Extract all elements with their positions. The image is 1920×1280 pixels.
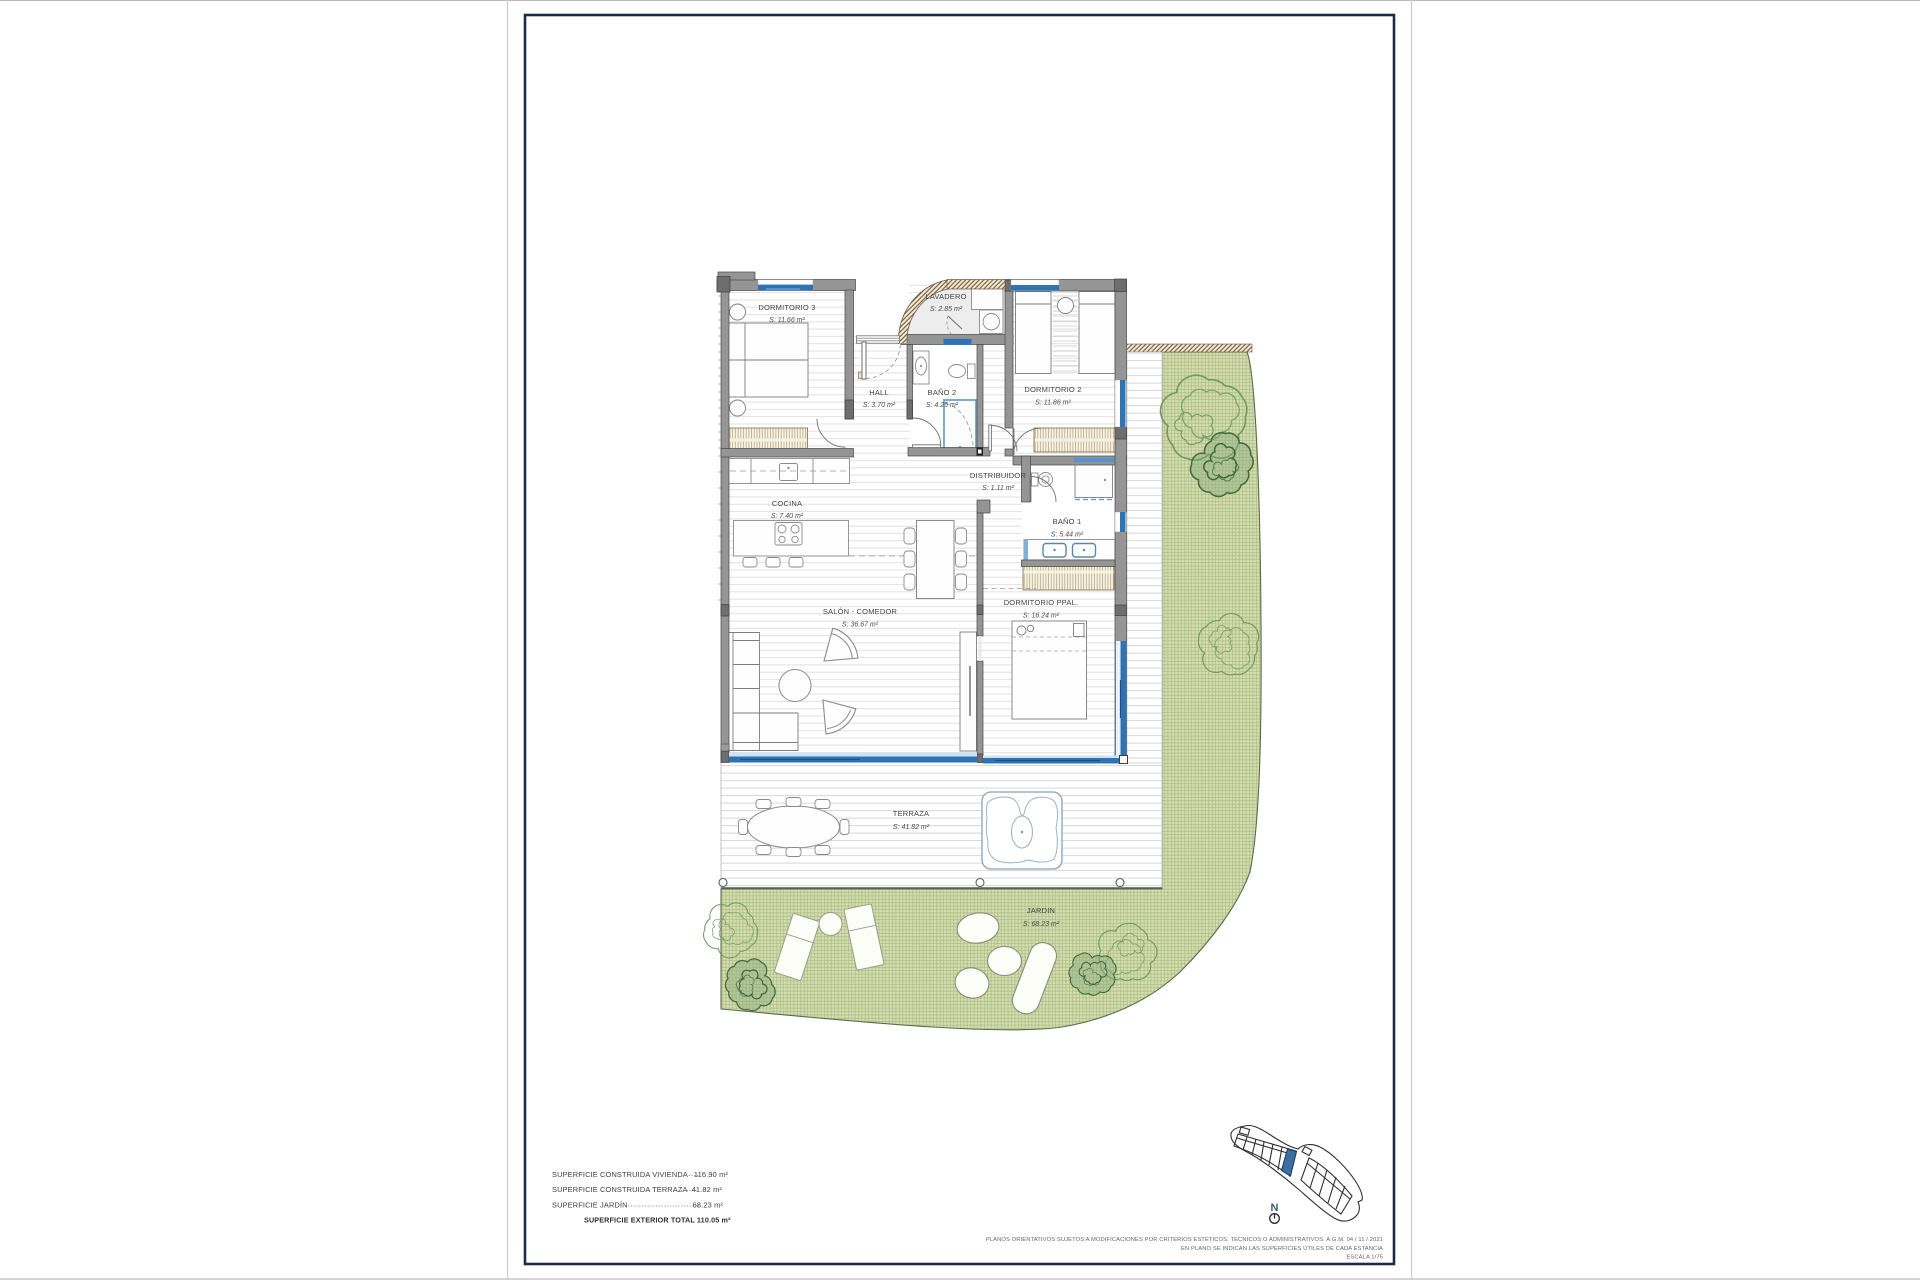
svg-text:68.23 m²: 68.23 m² xyxy=(693,1201,724,1210)
svg-text:PLANOS ORIENTATIVOS SUJETOS A: PLANOS ORIENTATIVOS SUJETOS A MODIFICACI… xyxy=(986,1236,1383,1243)
svg-text:SUPERFICIE CONSTRUIDA VIVIENDA: SUPERFICIE CONSTRUIDA VIVIENDA xyxy=(552,1170,688,1179)
svg-text:DORMITORIO 2: DORMITORIO 2 xyxy=(1024,385,1081,394)
svg-text:SUPERFICIE CONSTRUIDA TERRAZA: SUPERFICIE CONSTRUIDA TERRAZA xyxy=(552,1185,688,1194)
svg-text:SUPERFICIE EXTERIOR TOTAL 110.: SUPERFICIE EXTERIOR TOTAL 110.05 m² xyxy=(584,1216,731,1225)
svg-text:HALL: HALL xyxy=(869,388,889,397)
svg-text:COCINA: COCINA xyxy=(772,499,802,508)
svg-text:S: 41.82 m²: S: 41.82 m² xyxy=(893,824,930,831)
svg-text:N: N xyxy=(1271,1202,1279,1214)
svg-text:TERRAZA: TERRAZA xyxy=(893,809,929,818)
svg-text:S: 4.25 m²: S: 4.25 m² xyxy=(926,402,959,409)
svg-text:ESCALA 1/75: ESCALA 1/75 xyxy=(1346,1255,1383,1261)
svg-text:S: 68.23 m²: S: 68.23 m² xyxy=(1023,921,1060,928)
svg-text:BAÑO 1: BAÑO 1 xyxy=(1053,517,1082,526)
svg-text:S: 16.24 m²: S: 16.24 m² xyxy=(1023,613,1060,620)
svg-text:S: 11.86 m²: S: 11.86 m² xyxy=(1035,400,1071,407)
svg-text:BAÑO 2: BAÑO 2 xyxy=(928,388,957,397)
svg-text:S: 5.44 m²: S: 5.44 m² xyxy=(1051,532,1084,539)
svg-text:S: 3.70 m²: S: 3.70 m² xyxy=(863,402,896,409)
svg-text:DORMITORIO PPAL.: DORMITORIO PPAL. xyxy=(1004,598,1079,607)
svg-text:S: 11.66 m²: S: 11.66 m² xyxy=(769,317,805,324)
svg-text:S: 2.85 m²: S: 2.85 m² xyxy=(930,306,963,313)
svg-text:41.82 m²: 41.82 m² xyxy=(692,1185,723,1194)
svg-text:SUPERFICIE JARDÍN: SUPERFICIE JARDÍN xyxy=(552,1201,628,1210)
svg-text:S: 1.11 m²: S: 1.11 m² xyxy=(982,485,1014,492)
svg-text:S: 7.40 m²: S: 7.40 m² xyxy=(771,513,804,520)
svg-text:116.90 m²: 116.90 m² xyxy=(694,1170,728,1179)
svg-text:SALÓN - COMEDOR: SALÓN - COMEDOR xyxy=(823,607,898,616)
svg-text:DISTRIBUIDOR: DISTRIBUIDOR xyxy=(970,471,1027,480)
svg-text:EN PLANO SE INDICAN LAS SUPERF: EN PLANO SE INDICAN LAS SUPERFICIES ÚTIL… xyxy=(1181,1245,1383,1252)
svg-text:LAVADERO: LAVADERO xyxy=(925,292,966,301)
svg-text:JARDIN: JARDIN xyxy=(1027,906,1055,915)
svg-text:S: 36.67 m²: S: 36.67 m² xyxy=(842,622,879,629)
svg-text:DORMITORIO 3: DORMITORIO 3 xyxy=(758,303,815,312)
